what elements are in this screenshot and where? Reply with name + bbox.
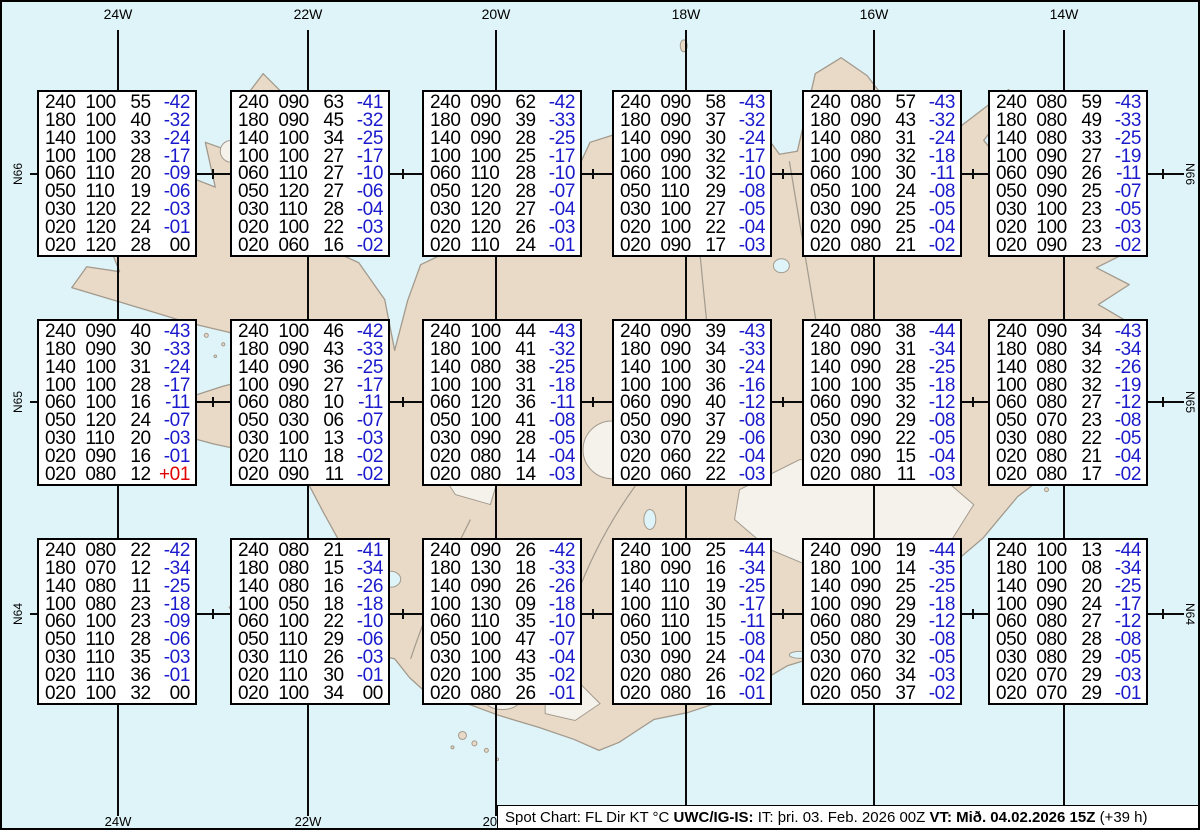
wind-direction: 100 xyxy=(470,323,507,340)
spot-data-row: 06010023-09 xyxy=(45,613,190,630)
wind-direction: 080 xyxy=(85,596,122,613)
wind-direction: 090 xyxy=(660,94,697,111)
flight-level: 240 xyxy=(810,542,846,559)
wind-speed-kt: 31 xyxy=(127,359,151,376)
temperature-c: +01 xyxy=(155,466,190,483)
wind-speed-kt: 31 xyxy=(512,377,536,394)
spot-data-row: 02009017-03 xyxy=(620,237,765,254)
temperature-c: -11 xyxy=(920,165,955,182)
wind-direction: 090 xyxy=(278,94,315,111)
flight-level: 140 xyxy=(810,359,846,376)
spot-data-row: 10010028-17 xyxy=(45,377,190,394)
temperature-c: -17 xyxy=(540,148,575,165)
spot-data-row: 06009040-12 xyxy=(620,394,765,411)
wind-speed-kt: 45 xyxy=(320,112,344,129)
wind-direction: 120 xyxy=(85,237,122,254)
temperature-c: -35 xyxy=(920,560,955,577)
wind-speed-kt: 29 xyxy=(1078,685,1102,702)
flight-level: 060 xyxy=(810,165,846,182)
wind-speed-kt: 26 xyxy=(320,649,344,666)
wind-direction: 100 xyxy=(850,183,887,200)
temperature-c: -12 xyxy=(920,394,955,411)
flight-level: 020 xyxy=(238,448,274,465)
wind-speed-kt: 18 xyxy=(320,596,344,613)
spot-data-row: 02012024-01 xyxy=(45,219,190,236)
flight-level: 140 xyxy=(430,359,466,376)
spot-data-row: 14010030-24 xyxy=(620,359,765,376)
temperature-c: 00 xyxy=(348,685,383,702)
temperature-c: -02 xyxy=(540,667,575,684)
wind-speed-kt: 24 xyxy=(127,219,151,236)
flight-level: 020 xyxy=(620,466,656,483)
flight-level: 020 xyxy=(810,219,846,236)
spot-data-row: 02011024-01 xyxy=(430,237,575,254)
wind-speed-kt: 40 xyxy=(127,112,151,129)
wind-direction: 110 xyxy=(278,631,315,648)
flight-level: 030 xyxy=(238,201,274,218)
spot-data-row: 03008022-05 xyxy=(996,430,1141,447)
spot-data-row: 02006034-03 xyxy=(810,667,955,684)
wind-speed-kt: 12 xyxy=(127,560,151,577)
wind-direction: 030 xyxy=(278,412,315,429)
temperature-c: -34 xyxy=(920,341,955,358)
temperature-c: -03 xyxy=(155,430,190,447)
wind-direction: 080 xyxy=(850,631,887,648)
wind-speed-kt: 21 xyxy=(892,237,916,254)
temperature-c: -05 xyxy=(920,430,955,447)
wind-direction: 090 xyxy=(850,341,887,358)
wind-direction: 130 xyxy=(470,560,507,577)
wind-speed-kt: 28 xyxy=(512,183,536,200)
wind-speed-kt: 20 xyxy=(127,165,151,182)
wind-direction: 090 xyxy=(660,148,697,165)
wind-speed-kt: 22 xyxy=(702,219,726,236)
flight-level: 060 xyxy=(810,613,846,630)
flight-level: 240 xyxy=(238,542,274,559)
spot-data-row: 14009028-25 xyxy=(430,130,575,147)
flight-level: 180 xyxy=(45,112,81,129)
flight-level: 240 xyxy=(996,94,1032,111)
spot-data-row: 05010015-08 xyxy=(620,631,765,648)
wind-direction: 080 xyxy=(470,685,507,702)
wind-direction: 080 xyxy=(660,685,697,702)
temperature-c: -07 xyxy=(1106,183,1141,200)
spot-data-row: 02009016-01 xyxy=(45,448,190,465)
wind-direction: 110 xyxy=(470,613,507,630)
spot-data-row: 03008029-05 xyxy=(996,649,1141,666)
spot-data-row: 24010055-42 xyxy=(45,94,190,111)
spot-data-row: 10011030-17 xyxy=(620,596,765,613)
spot-data-row: 02010022-03 xyxy=(238,219,383,236)
spot-data-row: 03011020-03 xyxy=(45,430,190,447)
wind-direction: 080 xyxy=(1036,394,1073,411)
flight-level: 180 xyxy=(810,341,846,358)
spot-data-row: 18013018-33 xyxy=(430,560,575,577)
wind-speed-kt: 30 xyxy=(892,631,916,648)
wind-direction: 100 xyxy=(278,613,315,630)
wind-speed-kt: 14 xyxy=(512,448,536,465)
temperature-c: -06 xyxy=(348,631,383,648)
flight-level: 020 xyxy=(996,667,1032,684)
flight-level: 240 xyxy=(620,323,656,340)
flight-level: 050 xyxy=(430,183,466,200)
flight-level: 060 xyxy=(620,613,656,630)
temperature-c: -44 xyxy=(730,542,765,559)
temperature-c: -25 xyxy=(730,578,765,595)
wind-speed-kt: 29 xyxy=(892,412,916,429)
spot-data-row: 02012026-03 xyxy=(430,219,575,236)
wind-direction: 110 xyxy=(278,448,315,465)
wind-direction: 100 xyxy=(85,148,122,165)
spot-data-row: 03010023-05 xyxy=(996,201,1141,218)
wind-direction: 090 xyxy=(660,112,697,129)
wind-speed-kt: 27 xyxy=(1078,613,1102,630)
wind-direction: 100 xyxy=(85,394,122,411)
wind-direction: 110 xyxy=(85,183,122,200)
spot-data-row: 02010023-03 xyxy=(996,219,1141,236)
wind-direction: 110 xyxy=(660,578,697,595)
spot-data-row: 10009032-18 xyxy=(810,148,955,165)
temperature-c: -34 xyxy=(1106,560,1141,577)
wind-direction: 070 xyxy=(850,649,887,666)
wind-direction: 100 xyxy=(660,377,697,394)
spot-data-row: 24008057-43 xyxy=(810,94,955,111)
flight-level: 180 xyxy=(810,112,846,129)
flight-level: 180 xyxy=(430,560,466,577)
wind-speed-kt: 57 xyxy=(892,94,916,111)
temperature-c: -06 xyxy=(155,631,190,648)
wind-speed-kt: 25 xyxy=(892,201,916,218)
wind-direction: 100 xyxy=(1036,542,1073,559)
temperature-c: -17 xyxy=(730,148,765,165)
temperature-c: -18 xyxy=(540,596,575,613)
flight-level: 060 xyxy=(620,394,656,411)
flight-level: 180 xyxy=(238,112,274,129)
spot-data-row: 03009024-04 xyxy=(620,649,765,666)
spot-data-row: 18009045-32 xyxy=(238,112,383,129)
wind-direction: 110 xyxy=(660,613,697,630)
spot-data-row: 10010028-17 xyxy=(45,148,190,165)
wind-direction: 090 xyxy=(1036,323,1073,340)
wind-speed-kt: 37 xyxy=(702,412,726,429)
flight-level: 020 xyxy=(620,685,656,702)
latitude-label-left: N64 xyxy=(11,603,25,625)
spot-data-box: 24010046-4218009043-3314009036-251000902… xyxy=(230,319,390,486)
temperature-c: -12 xyxy=(1106,613,1141,630)
wind-direction: 110 xyxy=(470,165,507,182)
temperature-c: -02 xyxy=(920,685,955,702)
flight-level: 060 xyxy=(996,165,1032,182)
temperature-c: -12 xyxy=(730,394,765,411)
temperature-c: -10 xyxy=(730,165,765,182)
flight-level: 240 xyxy=(620,94,656,111)
wind-direction: 120 xyxy=(85,412,122,429)
flight-level: 140 xyxy=(810,578,846,595)
flight-level: 100 xyxy=(620,148,656,165)
wind-speed-kt: 19 xyxy=(702,578,726,595)
wind-direction: 100 xyxy=(85,112,122,129)
wind-direction: 080 xyxy=(85,578,122,595)
flight-level: 180 xyxy=(996,112,1032,129)
wind-speed-kt: 26 xyxy=(512,578,536,595)
flight-level: 140 xyxy=(430,578,466,595)
spot-data-row: 14009030-24 xyxy=(620,130,765,147)
flight-level: 020 xyxy=(810,237,846,254)
spot-data-box: 24009040-4318009030-3314010031-241001002… xyxy=(37,319,197,486)
wind-direction: 080 xyxy=(850,94,887,111)
spot-data-row: 10009027-17 xyxy=(238,377,383,394)
wind-speed-kt: 15 xyxy=(702,613,726,630)
graticule-tick xyxy=(1162,609,1164,619)
flight-level: 240 xyxy=(430,323,466,340)
spot-data-row: 02009023-02 xyxy=(996,237,1141,254)
wind-speed-kt: 12 xyxy=(127,466,151,483)
wind-speed-kt: 34 xyxy=(892,667,916,684)
longitude-label-bottom: 22W xyxy=(295,814,322,829)
temperature-c: -25 xyxy=(1106,578,1141,595)
wind-direction: 080 xyxy=(1036,377,1073,394)
wind-direction: 080 xyxy=(85,466,122,483)
wind-speed-kt: 32 xyxy=(892,148,916,165)
temperature-c: -08 xyxy=(1106,631,1141,648)
flight-level: 180 xyxy=(810,560,846,577)
spot-data-row: 03009022-05 xyxy=(810,430,955,447)
spot-data-row: 02008026-01 xyxy=(430,685,575,702)
spot-data-row: 06008010-11 xyxy=(238,394,383,411)
flight-level: 050 xyxy=(810,183,846,200)
spot-data-row: 02011036-01 xyxy=(45,667,190,684)
wind-speed-kt: 58 xyxy=(702,94,726,111)
flight-level: 030 xyxy=(996,201,1032,218)
wind-direction: 070 xyxy=(1036,412,1073,429)
wind-speed-kt: 08 xyxy=(1078,560,1102,577)
wind-speed-kt: 11 xyxy=(892,466,916,483)
wind-direction: 080 xyxy=(1036,631,1073,648)
spot-data-row: 03007032-05 xyxy=(810,649,955,666)
temperature-c: -04 xyxy=(1106,448,1141,465)
wind-direction: 090 xyxy=(660,394,697,411)
temperature-c: -24 xyxy=(730,359,765,376)
wind-speed-kt: 41 xyxy=(512,412,536,429)
wind-speed-kt: 22 xyxy=(892,430,916,447)
wind-speed-kt: 29 xyxy=(320,631,344,648)
flight-level: 030 xyxy=(238,649,274,666)
temperature-c: -43 xyxy=(1106,323,1141,340)
flight-level: 020 xyxy=(430,667,466,684)
spot-data-row: 18008015-34 xyxy=(238,560,383,577)
wind-speed-kt: 38 xyxy=(512,359,536,376)
wind-speed-kt: 15 xyxy=(320,560,344,577)
wind-speed-kt: 32 xyxy=(1078,377,1102,394)
wind-speed-kt: 43 xyxy=(512,649,536,666)
temperature-c: 00 xyxy=(155,685,190,702)
spot-data-row: 14009028-25 xyxy=(810,359,955,376)
spot-data-row: 03012022-03 xyxy=(45,201,190,218)
spot-data-row: 18008049-33 xyxy=(996,112,1141,129)
flight-level: 100 xyxy=(238,377,274,394)
spot-data-row: 05012028-07 xyxy=(430,183,575,200)
spot-data-row: 10010025-17 xyxy=(430,148,575,165)
spot-data-row: 02006016-02 xyxy=(238,237,383,254)
wind-direction: 090 xyxy=(850,112,887,129)
flight-level: 140 xyxy=(996,359,1032,376)
temperature-c: -11 xyxy=(348,394,383,411)
flight-level: 050 xyxy=(996,412,1032,429)
legend-text-segment: VT: Mið. 04.02.2026 15Z xyxy=(929,809,1099,826)
wind-direction: 090 xyxy=(85,323,122,340)
spot-data-row: 05007023-08 xyxy=(996,412,1141,429)
wind-speed-kt: 32 xyxy=(127,685,151,702)
wind-direction: 100 xyxy=(278,323,315,340)
flight-level: 180 xyxy=(45,560,81,577)
spot-data-row: 02011018-02 xyxy=(238,448,383,465)
wind-speed-kt: 23 xyxy=(1078,412,1102,429)
wind-speed-kt: 27 xyxy=(320,183,344,200)
temperature-c: -17 xyxy=(155,148,190,165)
flight-level: 020 xyxy=(45,237,81,254)
spot-data-row: 10009032-17 xyxy=(620,148,765,165)
flight-level: 240 xyxy=(45,94,81,111)
flight-level: 140 xyxy=(45,359,81,376)
spot-data-row: 05011029-06 xyxy=(238,631,383,648)
spot-data-row: 05011029-08 xyxy=(620,183,765,200)
wind-speed-kt: 49 xyxy=(1078,112,1102,129)
wind-direction: 120 xyxy=(85,201,122,218)
wind-direction: 110 xyxy=(278,667,315,684)
wind-direction: 100 xyxy=(660,631,697,648)
temperature-c: -24 xyxy=(920,130,955,147)
temperature-c: -04 xyxy=(730,649,765,666)
spot-data-row: 14009026-26 xyxy=(430,578,575,595)
temperature-c: -07 xyxy=(540,631,575,648)
temperature-c: -18 xyxy=(540,377,575,394)
temperature-c: -19 xyxy=(1106,148,1141,165)
wind-direction: 070 xyxy=(660,430,697,447)
wind-speed-kt: 17 xyxy=(702,237,726,254)
flight-level: 030 xyxy=(620,430,656,447)
spot-data-row: 14008011-25 xyxy=(45,578,190,595)
graticule-tick xyxy=(402,609,404,619)
flight-level: 060 xyxy=(430,165,466,182)
spot-data-row: 06012036-11 xyxy=(430,394,575,411)
wind-direction: 090 xyxy=(278,359,315,376)
temperature-c: -08 xyxy=(920,183,955,200)
graticule-tick xyxy=(972,609,974,619)
wind-direction: 080 xyxy=(278,542,315,559)
temperature-c: -32 xyxy=(730,112,765,129)
legend-bar: Spot Chart: FL Dir KT °C UWC/IG-IS: IT: … xyxy=(497,805,1200,830)
flight-level: 100 xyxy=(45,148,81,165)
wind-direction: 110 xyxy=(85,631,122,648)
flight-level: 180 xyxy=(238,341,274,358)
wind-direction: 110 xyxy=(660,596,697,613)
temperature-c: -11 xyxy=(730,613,765,630)
wind-speed-kt: 18 xyxy=(320,448,344,465)
wind-speed-kt: 06 xyxy=(320,412,344,429)
flight-level: 240 xyxy=(810,323,846,340)
wind-direction: 080 xyxy=(1036,112,1073,129)
spot-data-row: 0201202800 xyxy=(45,237,190,254)
wind-direction: 080 xyxy=(278,394,315,411)
flight-level: 020 xyxy=(810,466,846,483)
longitude-label-top: 14W xyxy=(1050,6,1079,22)
temperature-c: -08 xyxy=(1106,412,1141,429)
wind-speed-kt: 29 xyxy=(892,596,916,613)
wind-direction: 100 xyxy=(85,613,122,630)
wind-direction: 080 xyxy=(1036,130,1073,147)
spot-data-row: 14009036-25 xyxy=(238,359,383,376)
wind-speed-kt: 20 xyxy=(1078,578,1102,595)
wind-direction: 090 xyxy=(85,341,122,358)
spot-data-row: 10013009-18 xyxy=(430,596,575,613)
flight-level: 180 xyxy=(430,341,466,358)
flight-level: 140 xyxy=(430,130,466,147)
spot-data-box: 24008038-4418009031-3414009028-251001003… xyxy=(802,319,962,486)
wind-speed-kt: 11 xyxy=(320,466,344,483)
graticule-tick xyxy=(212,169,214,179)
wind-direction: 100 xyxy=(470,667,507,684)
longitude-label-top: 16W xyxy=(860,6,889,22)
spot-data-row: 10009024-17 xyxy=(996,596,1141,613)
spot-data-row: 06011015-11 xyxy=(620,613,765,630)
wind-direction: 080 xyxy=(1036,94,1073,111)
wind-speed-kt: 25 xyxy=(1078,183,1102,200)
wind-speed-kt: 23 xyxy=(1078,219,1102,236)
spot-data-row: 03011026-03 xyxy=(238,649,383,666)
wind-speed-kt: 13 xyxy=(320,430,344,447)
wind-speed-kt: 30 xyxy=(702,596,726,613)
temperature-c: -09 xyxy=(155,165,190,182)
flight-level: 050 xyxy=(996,183,1032,200)
temperature-c: -01 xyxy=(348,667,383,684)
flight-level: 020 xyxy=(430,448,466,465)
wind-direction: 120 xyxy=(470,394,507,411)
spot-data-row: 10008023-18 xyxy=(45,596,190,613)
wind-direction: 090 xyxy=(470,94,507,111)
spot-data-row: 10010027-17 xyxy=(238,148,383,165)
wind-speed-kt: 21 xyxy=(1078,448,1102,465)
spot-data-row: 03007029-06 xyxy=(620,430,765,447)
wind-speed-kt: 36 xyxy=(512,394,536,411)
flight-level: 020 xyxy=(238,466,274,483)
wind-direction: 110 xyxy=(85,649,122,666)
wind-direction: 100 xyxy=(278,130,315,147)
wind-speed-kt: 30 xyxy=(892,165,916,182)
temperature-c: -02 xyxy=(730,667,765,684)
temperature-c: -44 xyxy=(920,542,955,559)
flight-level: 020 xyxy=(430,466,466,483)
flight-level: 100 xyxy=(996,377,1032,394)
flight-level: 100 xyxy=(996,596,1032,613)
wind-direction: 070 xyxy=(1036,667,1073,684)
wind-direction: 090 xyxy=(660,130,697,147)
wind-speed-kt: 28 xyxy=(512,130,536,147)
temperature-c: -42 xyxy=(348,323,383,340)
temperature-c: -44 xyxy=(920,323,955,340)
wind-direction: 080 xyxy=(1036,448,1073,465)
wind-direction: 100 xyxy=(470,649,507,666)
flight-level: 100 xyxy=(430,596,466,613)
flight-level: 020 xyxy=(810,667,846,684)
wind-speed-kt: 11 xyxy=(127,578,151,595)
flight-level: 030 xyxy=(810,201,846,218)
temperature-c: -41 xyxy=(348,542,383,559)
wind-direction: 100 xyxy=(470,341,507,358)
spot-data-row: 18009030-33 xyxy=(45,341,190,358)
wind-direction: 080 xyxy=(1036,341,1073,358)
wind-speed-kt: 34 xyxy=(1078,323,1102,340)
wind-speed-kt: 27 xyxy=(512,201,536,218)
